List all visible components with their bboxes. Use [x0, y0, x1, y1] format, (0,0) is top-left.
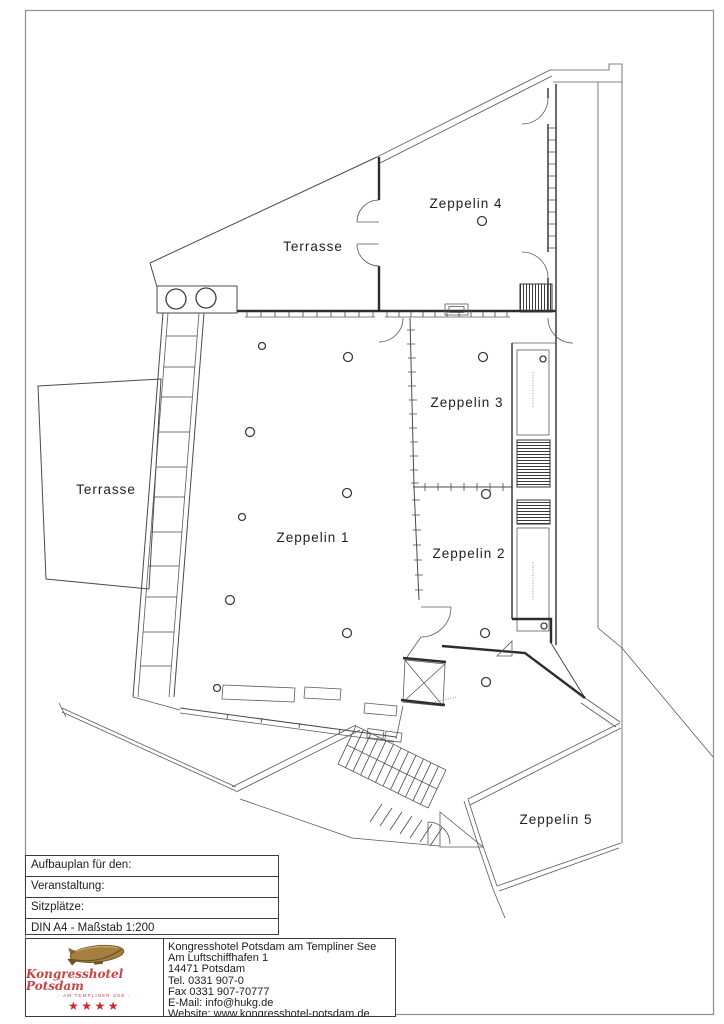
room-label-terrasse-left: Terrasse: [76, 482, 136, 497]
outdoor-path: [59, 703, 236, 791]
roof-edges: [150, 70, 552, 287]
vendor-logo-name: Kongresshotel Potsdam: [26, 968, 163, 992]
room-label-zeppelin-4: Zeppelin 4: [429, 196, 502, 211]
room-label-zeppelin-3: Zeppelin 3: [430, 395, 503, 410]
technical-rooms: [512, 343, 585, 698]
vendor-star-rating: ★★★★: [68, 1000, 121, 1012]
movable-partitions: [405, 318, 512, 660]
vendor-contact: Kongresshotel Potsdam am Templiner See A…: [163, 939, 395, 1016]
titleblock-row-aufbauplan: Aufbauplan für den:: [25, 855, 279, 877]
partition-storage-hatch: [520, 284, 552, 312]
elevator: [401, 658, 456, 706]
contact-line-website: Website: www.kongresshotel-potsdam.de: [168, 1009, 395, 1016]
zeppelin-4-walls: [237, 84, 556, 645]
contact-line-city: 14471 Potsdam: [168, 964, 395, 975]
zeppelin-2-walls: [442, 641, 620, 727]
stair-hatch-upper: [517, 440, 550, 487]
deck-walkway: [550, 64, 713, 843]
titleblock-row-format: DIN A4 - Maßstab 1:200: [25, 918, 279, 935]
room-label-terrasse-upper: Terrasse: [283, 239, 343, 254]
vendor-box: Kongresshotel Potsdam - AM TEMPLINER SEE…: [25, 938, 396, 1017]
page: Zeppelin 4 Terrasse Zeppelin 3 Terrasse …: [0, 0, 724, 1024]
titleblock-row-veranstaltung: Veranstaltung:: [25, 876, 279, 898]
zeppelin-logo-icon: [58, 943, 132, 967]
room-label-zeppelin-2: Zeppelin 2: [432, 546, 505, 561]
room-label-zeppelin-5: Zeppelin 5: [519, 812, 592, 827]
stair-hatch-lower: [517, 500, 550, 524]
room-label-zeppelin-1: Zeppelin 1: [276, 530, 349, 545]
vendor-logo: Kongresshotel Potsdam - AM TEMPLINER SEE…: [26, 939, 163, 1016]
staircase: [232, 725, 446, 846]
zeppelin-1-walls: [133, 286, 403, 742]
column-markers: [226, 217, 491, 687]
titleblock-row-sitzplaetze: Sitzplätze:: [25, 897, 279, 919]
